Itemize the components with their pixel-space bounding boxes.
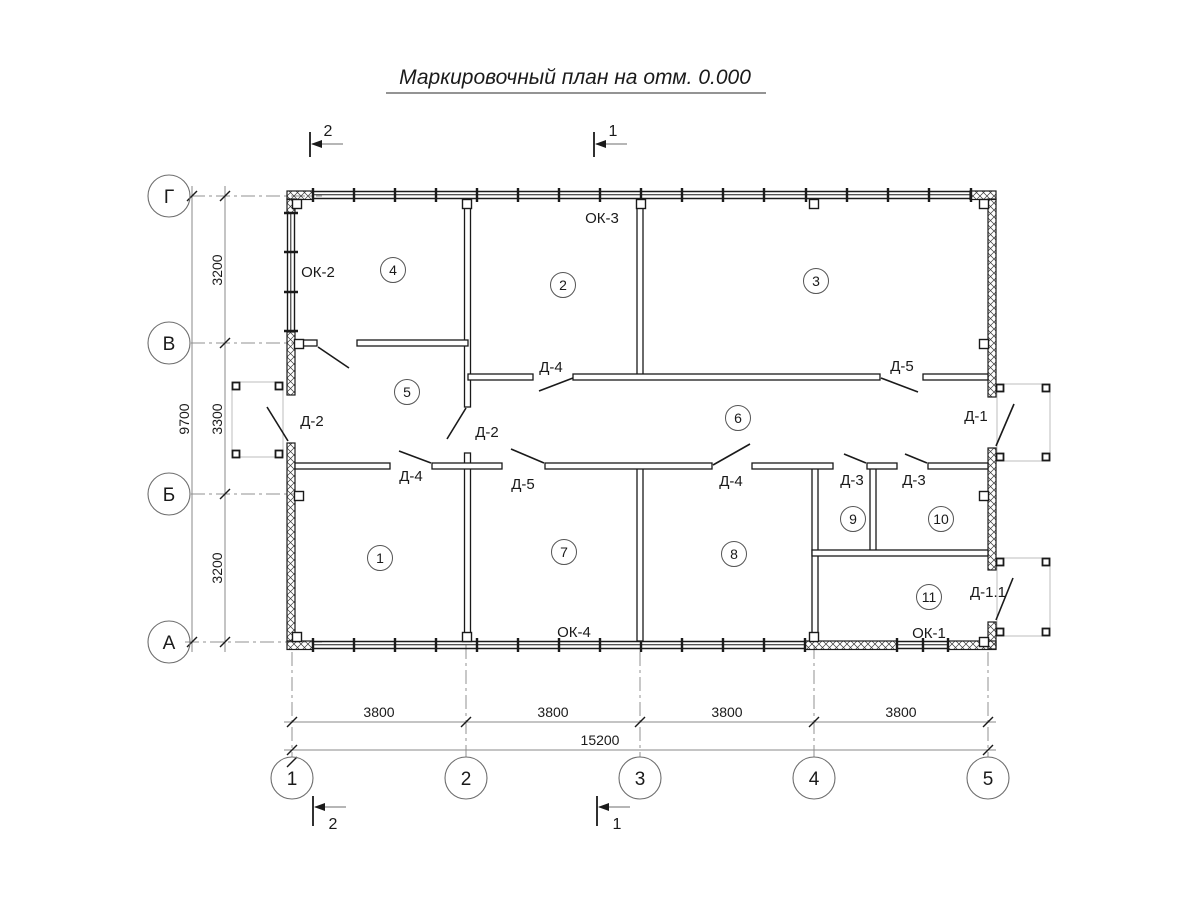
door-tag-d4-room2: Д-4 [539,359,563,376]
dim-left-total: 9700 [176,403,192,434]
axis-label-a: А [163,633,176,654]
window-tag-ok4: ОК-4 [557,624,591,641]
room-number-5: 5 [403,384,411,400]
axis-label-b: Б [163,485,175,506]
section-mark-top-2: 2 [310,123,343,157]
window-tag-ok2: ОК-2 [301,264,335,281]
porch-right-upper [997,384,1050,461]
room-number-9: 9 [849,511,857,527]
section-label-top-1: 1 [609,123,618,140]
window-tag-ok1: ОК-1 [912,625,946,642]
window-tag-ok3: ОК-3 [585,210,619,227]
axis-label-1: 1 [287,769,298,790]
door-tag-d5-room7: Д-5 [511,476,535,493]
drawing-title: Маркировочный план на отм. 0.000 [386,66,766,93]
section-mark-bottom-1: 1 [597,796,630,833]
door-tag-d3-room9: Д-3 [840,472,864,489]
section-label-top-2: 2 [324,123,333,140]
floor-plan-page: Маркировочный план на отм. 0.000 [0,0,1200,900]
door-tag-d2-interior: Д-2 [475,424,499,441]
dim-left-3: 3200 [209,552,225,583]
axis-bubbles [148,175,1009,799]
door-tag-d3-room10: Д-3 [902,472,926,489]
dim-bottom-2: 3800 [537,704,568,720]
room-bubbles [368,258,954,610]
axis-label-3: 3 [635,769,646,790]
section-mark-top-1: 1 [594,123,627,157]
dim-bottom-total: 15200 [581,732,620,748]
axis-label-4: 4 [809,769,820,790]
dim-bottom-4: 3800 [885,704,916,720]
section-mark-bottom-2: 2 [313,796,346,833]
interior-walls [295,199,988,641]
room-number-4: 4 [389,262,397,278]
window-band-ok2 [284,213,298,331]
dim-bottom-3: 3800 [711,704,742,720]
room-number-2: 2 [559,277,567,293]
dim-left-2: 3300 [209,403,225,434]
door-tag-d2-exterior: Д-2 [300,413,324,430]
room-number-11: 11 [922,589,937,605]
axis-label-5: 5 [983,769,994,790]
floor-plan-drawing: Маркировочный план на отм. 0.000 [0,0,1200,900]
room-number-8: 8 [730,546,738,562]
section-label-bottom-1: 1 [613,816,622,833]
page-title: Маркировочный план на отм. 0.000 [399,66,751,89]
dim-bottom-1: 3800 [363,704,394,720]
door-tag-d4-room1: Д-4 [399,468,423,485]
door-tag-d1: Д-1 [964,408,988,425]
room-number-1: 1 [376,550,384,566]
section-label-bottom-2: 2 [329,816,338,833]
door-tag-d1-1: Д-1.1 [970,584,1006,601]
opening-tags: ОК-2 ОК-3 ОК-4 ОК-1 Д-2 Д-2 Д-4 Д-5 Д-4 … [300,210,1006,642]
room-number-10: 10 [933,511,949,527]
axis-label-g: Г [164,187,174,208]
room-number-3: 3 [812,273,820,289]
room-number-7: 7 [560,544,568,560]
axis-label-2: 2 [461,769,472,790]
door-tag-d4-room8: Д-4 [719,473,743,490]
door-tag-d5-room3: Д-5 [890,358,914,375]
dim-left-1: 3200 [209,254,225,285]
room-number-6: 6 [734,410,742,426]
axis-label-v: В [163,334,176,355]
